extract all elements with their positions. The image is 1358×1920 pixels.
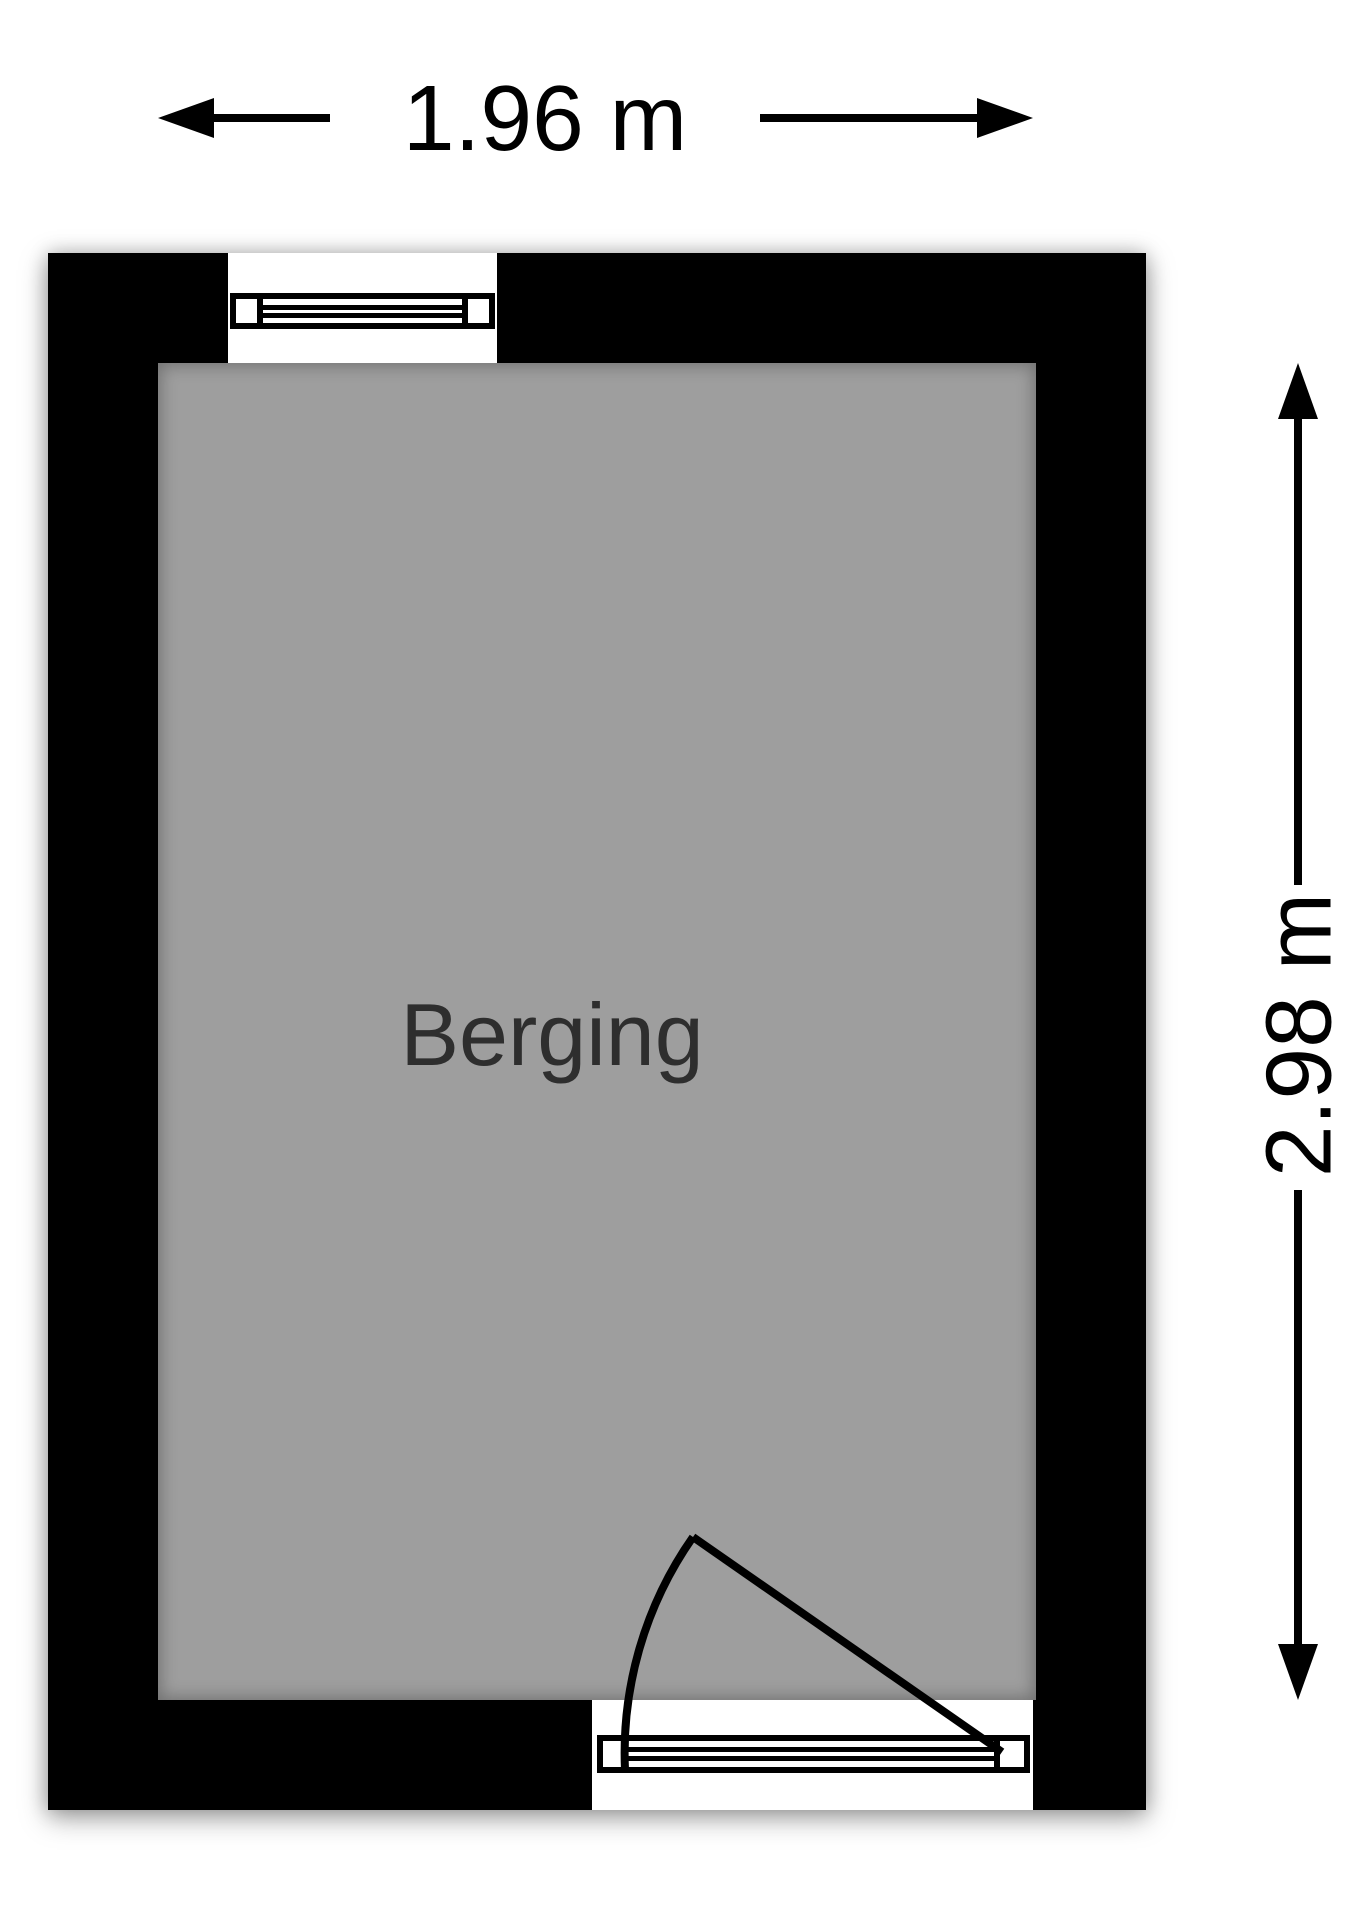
window-pane-line xyxy=(263,313,462,318)
height-dimension-label: 2.98 m xyxy=(1253,893,1346,1177)
arrow-right-icon xyxy=(977,98,1033,138)
door-sill-line xyxy=(628,1747,994,1752)
dimension-line xyxy=(214,114,330,122)
width-dimension-label: 1.96 m xyxy=(330,72,760,165)
window-frame-end xyxy=(257,299,263,323)
window-pane-line xyxy=(263,305,462,310)
dimension-line xyxy=(1294,1190,1302,1644)
door-frame-end xyxy=(994,1741,1000,1767)
dimension-line xyxy=(1294,415,1302,885)
window-symbol xyxy=(230,293,495,329)
door-opening xyxy=(592,1700,1033,1810)
arrow-up-icon xyxy=(1278,363,1318,419)
dimension-line xyxy=(760,114,977,122)
window-frame-end xyxy=(462,299,468,323)
floorplan-canvas: 1.96 m 2.98 m xyxy=(0,0,1358,1920)
arrow-left-icon xyxy=(158,98,214,138)
window-opening xyxy=(228,253,497,363)
door-sill-line xyxy=(628,1756,994,1761)
room-label: Berging xyxy=(400,991,703,1079)
door-frame-end xyxy=(622,1741,628,1767)
arrow-down-icon xyxy=(1278,1644,1318,1700)
door-sill-symbol xyxy=(597,1735,1030,1773)
